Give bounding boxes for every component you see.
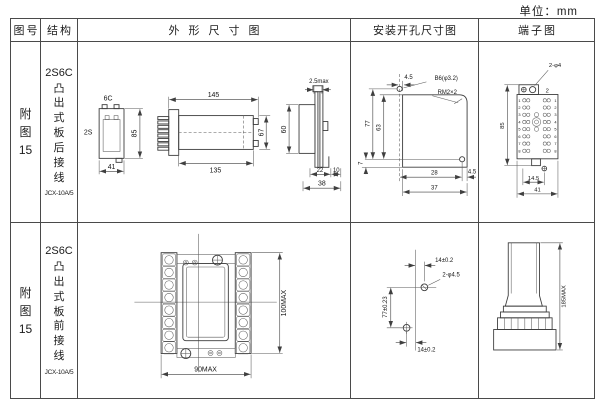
dim-37: 37 (431, 185, 438, 191)
dim-28: 28 (431, 170, 438, 176)
header-mounting: 安装开孔尺寸图 (351, 19, 479, 42)
row2-fig-no: 附图15 (18, 284, 33, 338)
dim-90max: 90MAX (194, 366, 217, 373)
terminal-grid: 1 2 3 4 5 6 7 8 1 2 3 4 5 6 7 8 (518, 97, 557, 152)
term-num-l: 4 (518, 119, 521, 124)
dim-145: 145 (208, 92, 220, 99)
row2-mounting-drawing: 14±0.2 2-φ4.5 77±0.23 14±0.2 (351, 224, 478, 398)
terminal-block-view: 2 2-φ4 1 2 3 4 5 6 7 8 1 2 3 4 5 (499, 63, 561, 198)
row1-terminal-cell: 2 2-φ4 1 2 3 4 5 6 7 8 1 2 3 4 5 (479, 42, 594, 223)
dim-60: 60 (281, 125, 288, 133)
dim-14-bottom: 14±0.2 (417, 347, 435, 353)
socket-terminals-right (236, 253, 249, 353)
unit-label: 单位：mm (519, 3, 578, 19)
term-num-l: 8 (518, 148, 520, 153)
row1-mounting-drawing: 4.5 B6(φ3.2) RM2×2 77 63 7 28 (351, 42, 478, 223)
dim-77-v: 77±0.23 (383, 295, 389, 317)
mounting-holes-view: 14±0.2 2-φ4.5 77±0.23 14±0.2 (383, 249, 461, 353)
dim-22: 22 (317, 167, 324, 173)
header-fig-no: 图号 (11, 19, 41, 42)
dim-100max: 100MAX (281, 289, 288, 316)
term-num-l: 3 (518, 112, 520, 117)
term-num-r: 3 (554, 112, 556, 117)
row1-structure-desc: 凸出式板后接线 (53, 82, 66, 186)
terminal-contacts (522, 98, 550, 152)
term-num-l: 5 (518, 126, 520, 131)
dim-38: 38 (318, 180, 326, 187)
dim-85: 85 (131, 129, 138, 137)
dim-6c: 6C (104, 95, 113, 102)
term-num-r: 8 (554, 148, 556, 153)
dim-41: 41 (108, 163, 116, 170)
row2-structure-desc: 凸出式板前接线 (53, 260, 66, 364)
row2-model: 2S6C (45, 245, 73, 257)
row1-fig-no: 附图15 (18, 105, 33, 159)
dim-4-5-top: 4.5 (404, 74, 413, 80)
thread-spec-label: RM2×2 (438, 89, 457, 95)
dim-14-5: 14.5 (527, 175, 538, 181)
term-num-r: 6 (554, 133, 556, 138)
header-terminal: 端子图 (479, 19, 594, 42)
row2-fig-no-cell: 附图15 (11, 223, 41, 398)
dim-7: 7 (358, 161, 364, 164)
terminal-count-label: 2 (545, 88, 548, 94)
row1-structure-cell: 2S6C 凸出式板后接线 JCX-10A/5 (41, 42, 78, 223)
term-num-r: 2 (554, 105, 556, 110)
row1-model-code: JCX-10A/5 (45, 190, 74, 197)
socket-terminals-left (162, 253, 175, 353)
term-num-l: 6 (518, 133, 520, 138)
row2-structure-cell: 2S6C 凸出式板前接线 JCX-10A/5 (41, 223, 78, 398)
relay-plugged-side-view: 185MAX (493, 242, 567, 349)
panel-profile-view: 2.5max 60 22 1 (281, 78, 341, 190)
row2-outline-drawing: 100MAX 90MAX (78, 224, 350, 398)
row2-mounting-cell: 14±0.2 2-φ4.5 77±0.23 14±0.2 (351, 223, 479, 398)
row1-outline-cell: 6C 2S 85 41 (78, 42, 351, 223)
row2-terminal-cell: 185MAX (479, 223, 594, 398)
term-num-r: 7 (554, 141, 556, 146)
header-outline: 外形尺寸图 (78, 19, 351, 42)
dim-2s: 2S (84, 129, 93, 136)
dim-85-terminal: 85 (499, 122, 505, 128)
hole-spec-label: B6(φ3.2) (435, 75, 458, 81)
dim-63: 63 (376, 123, 382, 130)
row1-outline-drawing: 6C 2S 85 41 (78, 42, 350, 223)
dim-4-5-right: 4.5 (468, 169, 477, 175)
dim-2-5max: 2.5max (309, 78, 329, 84)
dim-41-terminal: 41 (534, 187, 540, 193)
row2-terminal-drawing: 185MAX (480, 224, 594, 398)
row2-model-code: JCX-10A/5 (45, 369, 74, 376)
dim-77: 77 (365, 120, 371, 127)
mounting-hole-view: 4.5 B6(φ3.2) RM2×2 77 63 7 28 (358, 73, 476, 195)
row1-mounting-cell: 4.5 B6(φ3.2) RM2×2 77 63 7 28 (351, 42, 479, 223)
socket-front-view: 100MAX 90MAX (134, 233, 288, 377)
row1-terminal-drawing: 2 2-φ4 1 2 3 4 5 6 7 8 1 2 3 4 5 (480, 42, 594, 223)
spec-table: 图号 结构 外形尺寸图 安装开孔尺寸图 端子图 附图15 2S6C 凸出式板后接… (10, 18, 595, 399)
row1-fig-no-cell: 附图15 (11, 42, 41, 223)
term-num-l: 7 (518, 141, 520, 146)
holes-spec-label: 2-φ4.5 (442, 272, 460, 278)
row1-model: 2S6C (45, 67, 73, 79)
relay-side-view: 145 135 67 (158, 92, 270, 174)
term-num-r: 5 (554, 126, 556, 131)
dim-67: 67 (259, 128, 266, 136)
relay-front-view: 6C 2S 85 41 (84, 95, 143, 174)
term-num-r: 1 (554, 97, 556, 102)
dim-10: 10 (333, 167, 340, 173)
dim-14-top: 14±0.2 (435, 258, 453, 264)
term-num-l: 2 (518, 105, 520, 110)
header-structure: 结构 (41, 19, 78, 42)
row2-outline-cell: 100MAX 90MAX (78, 223, 351, 398)
dim-135: 135 (210, 167, 222, 174)
dim-185max: 185MAX (561, 285, 567, 307)
term-num-r: 4 (554, 119, 557, 124)
term-num-l: 1 (518, 97, 520, 102)
mount-holes-label: 2-φ4 (548, 63, 561, 69)
